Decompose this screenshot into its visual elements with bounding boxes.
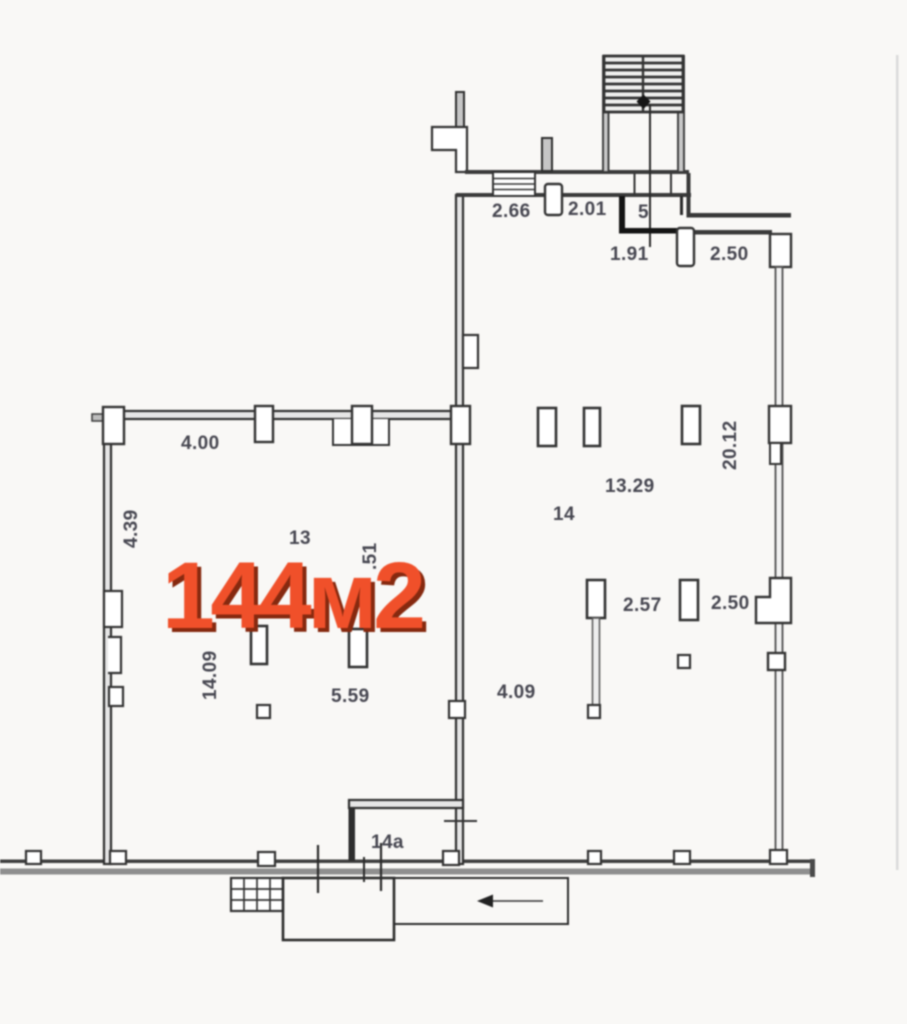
- svg-text:2.50: 2.50: [711, 593, 750, 614]
- svg-text:4.39: 4.39: [121, 509, 142, 548]
- svg-text:4.00: 4.00: [181, 433, 220, 454]
- svg-text:4.09: 4.09: [497, 682, 536, 703]
- svg-text:2.57: 2.57: [623, 595, 662, 616]
- svg-text:2.66: 2.66: [492, 201, 531, 222]
- svg-text:1.91: 1.91: [610, 244, 649, 265]
- svg-text:144м2: 144м2: [162, 543, 426, 649]
- svg-text:5.59: 5.59: [331, 686, 370, 707]
- svg-text:2.50: 2.50: [710, 244, 749, 265]
- svg-text:13.29: 13.29: [605, 476, 655, 497]
- svg-text:2.01: 2.01: [568, 199, 607, 220]
- svg-text:14: 14: [553, 504, 575, 525]
- svg-text:14.09: 14.09: [200, 650, 221, 700]
- svg-text:20.12: 20.12: [720, 420, 741, 470]
- svg-text:14a: 14a: [371, 832, 404, 853]
- svg-text:5: 5: [638, 202, 649, 223]
